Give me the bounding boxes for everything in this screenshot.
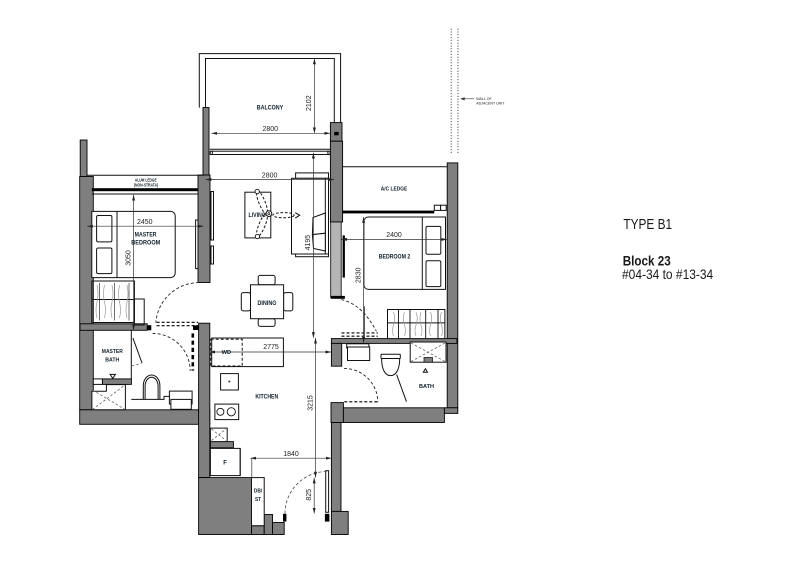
svg-text:2775: 2775 bbox=[263, 344, 279, 351]
svg-text:TYPE B1: TYPE B1 bbox=[623, 217, 672, 233]
svg-text:2830: 2830 bbox=[355, 267, 362, 283]
svg-text:BEDROOM 2: BEDROOM 2 bbox=[379, 255, 411, 261]
svg-text:ADJACENT UNIT: ADJACENT UNIT bbox=[476, 102, 505, 106]
svg-text:825: 825 bbox=[306, 489, 313, 501]
svg-text:MASTER: MASTER bbox=[135, 233, 157, 239]
svg-text:3050: 3050 bbox=[125, 250, 132, 266]
svg-text:2800: 2800 bbox=[263, 126, 279, 133]
svg-text:MASTER: MASTER bbox=[102, 349, 123, 355]
svg-text:2800: 2800 bbox=[262, 172, 278, 179]
svg-text:F: F bbox=[223, 460, 227, 466]
svg-text:BALCONY: BALCONY bbox=[257, 105, 284, 111]
svg-text:BEDROOM: BEDROOM bbox=[131, 241, 160, 247]
svg-text:WALL OF: WALL OF bbox=[476, 97, 492, 101]
svg-text:1840: 1840 bbox=[283, 451, 299, 458]
svg-text:BATH: BATH bbox=[419, 384, 434, 390]
svg-text:3215: 3215 bbox=[307, 395, 314, 411]
svg-text:2400: 2400 bbox=[386, 232, 402, 239]
svg-text:DB/: DB/ bbox=[254, 488, 263, 494]
svg-text:BATH: BATH bbox=[105, 357, 119, 363]
svg-text:4195: 4195 bbox=[305, 235, 312, 251]
svg-text:WD: WD bbox=[222, 350, 232, 356]
svg-text:ST: ST bbox=[255, 497, 261, 503]
svg-text:A/C LEDGE: A/C LEDGE bbox=[381, 186, 408, 192]
svg-text:(NON-STRATA): (NON-STRATA) bbox=[134, 183, 159, 188]
svg-text:KITCHEN: KITCHEN bbox=[255, 395, 278, 401]
svg-text:DINING: DINING bbox=[258, 301, 277, 307]
svg-text:2450: 2450 bbox=[137, 219, 153, 226]
svg-text:#04-34 to #13-34: #04-34 to #13-34 bbox=[622, 266, 713, 282]
svg-text:2102: 2102 bbox=[306, 95, 313, 111]
svg-text:LIVING: LIVING bbox=[249, 213, 267, 219]
